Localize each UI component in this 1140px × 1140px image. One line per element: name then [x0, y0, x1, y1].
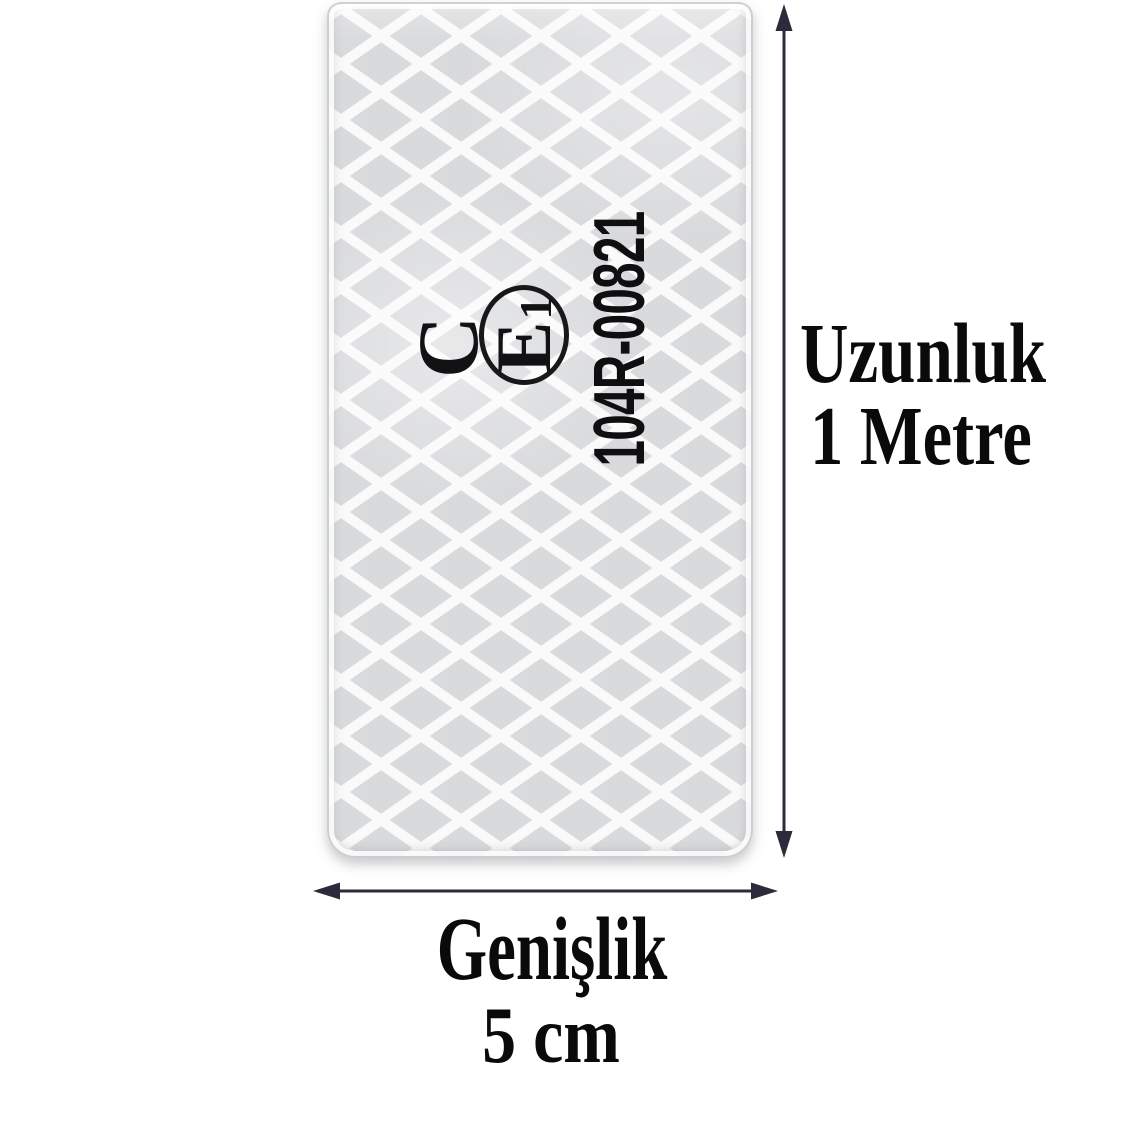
e-mark-number: 1 [518, 296, 564, 319]
e-mark-approval-circle: E1 [479, 285, 569, 385]
width-label-value: 5 cm [482, 996, 620, 1076]
diamond-lattice-pattern [327, 2, 753, 858]
width-label-title: Genişlik [437, 905, 667, 995]
reflective-tape-strip: C E1 104R-00821 [327, 2, 753, 858]
length-label-title: Uzunluk [800, 310, 1046, 396]
e-mark-letter: E [493, 321, 555, 373]
length-arrow-vertical [776, 4, 793, 858]
product-dimension-diagram: C E1 104R-00821 Uzunluk 1 Metre Genişlik… [0, 0, 1140, 1140]
tape-marking-letter-c: C [405, 316, 491, 378]
tape-approval-code: 104R-00821 [584, 212, 656, 467]
width-arrow-horizontal [313, 883, 778, 900]
length-label-value: 1 Metre [810, 395, 1032, 479]
